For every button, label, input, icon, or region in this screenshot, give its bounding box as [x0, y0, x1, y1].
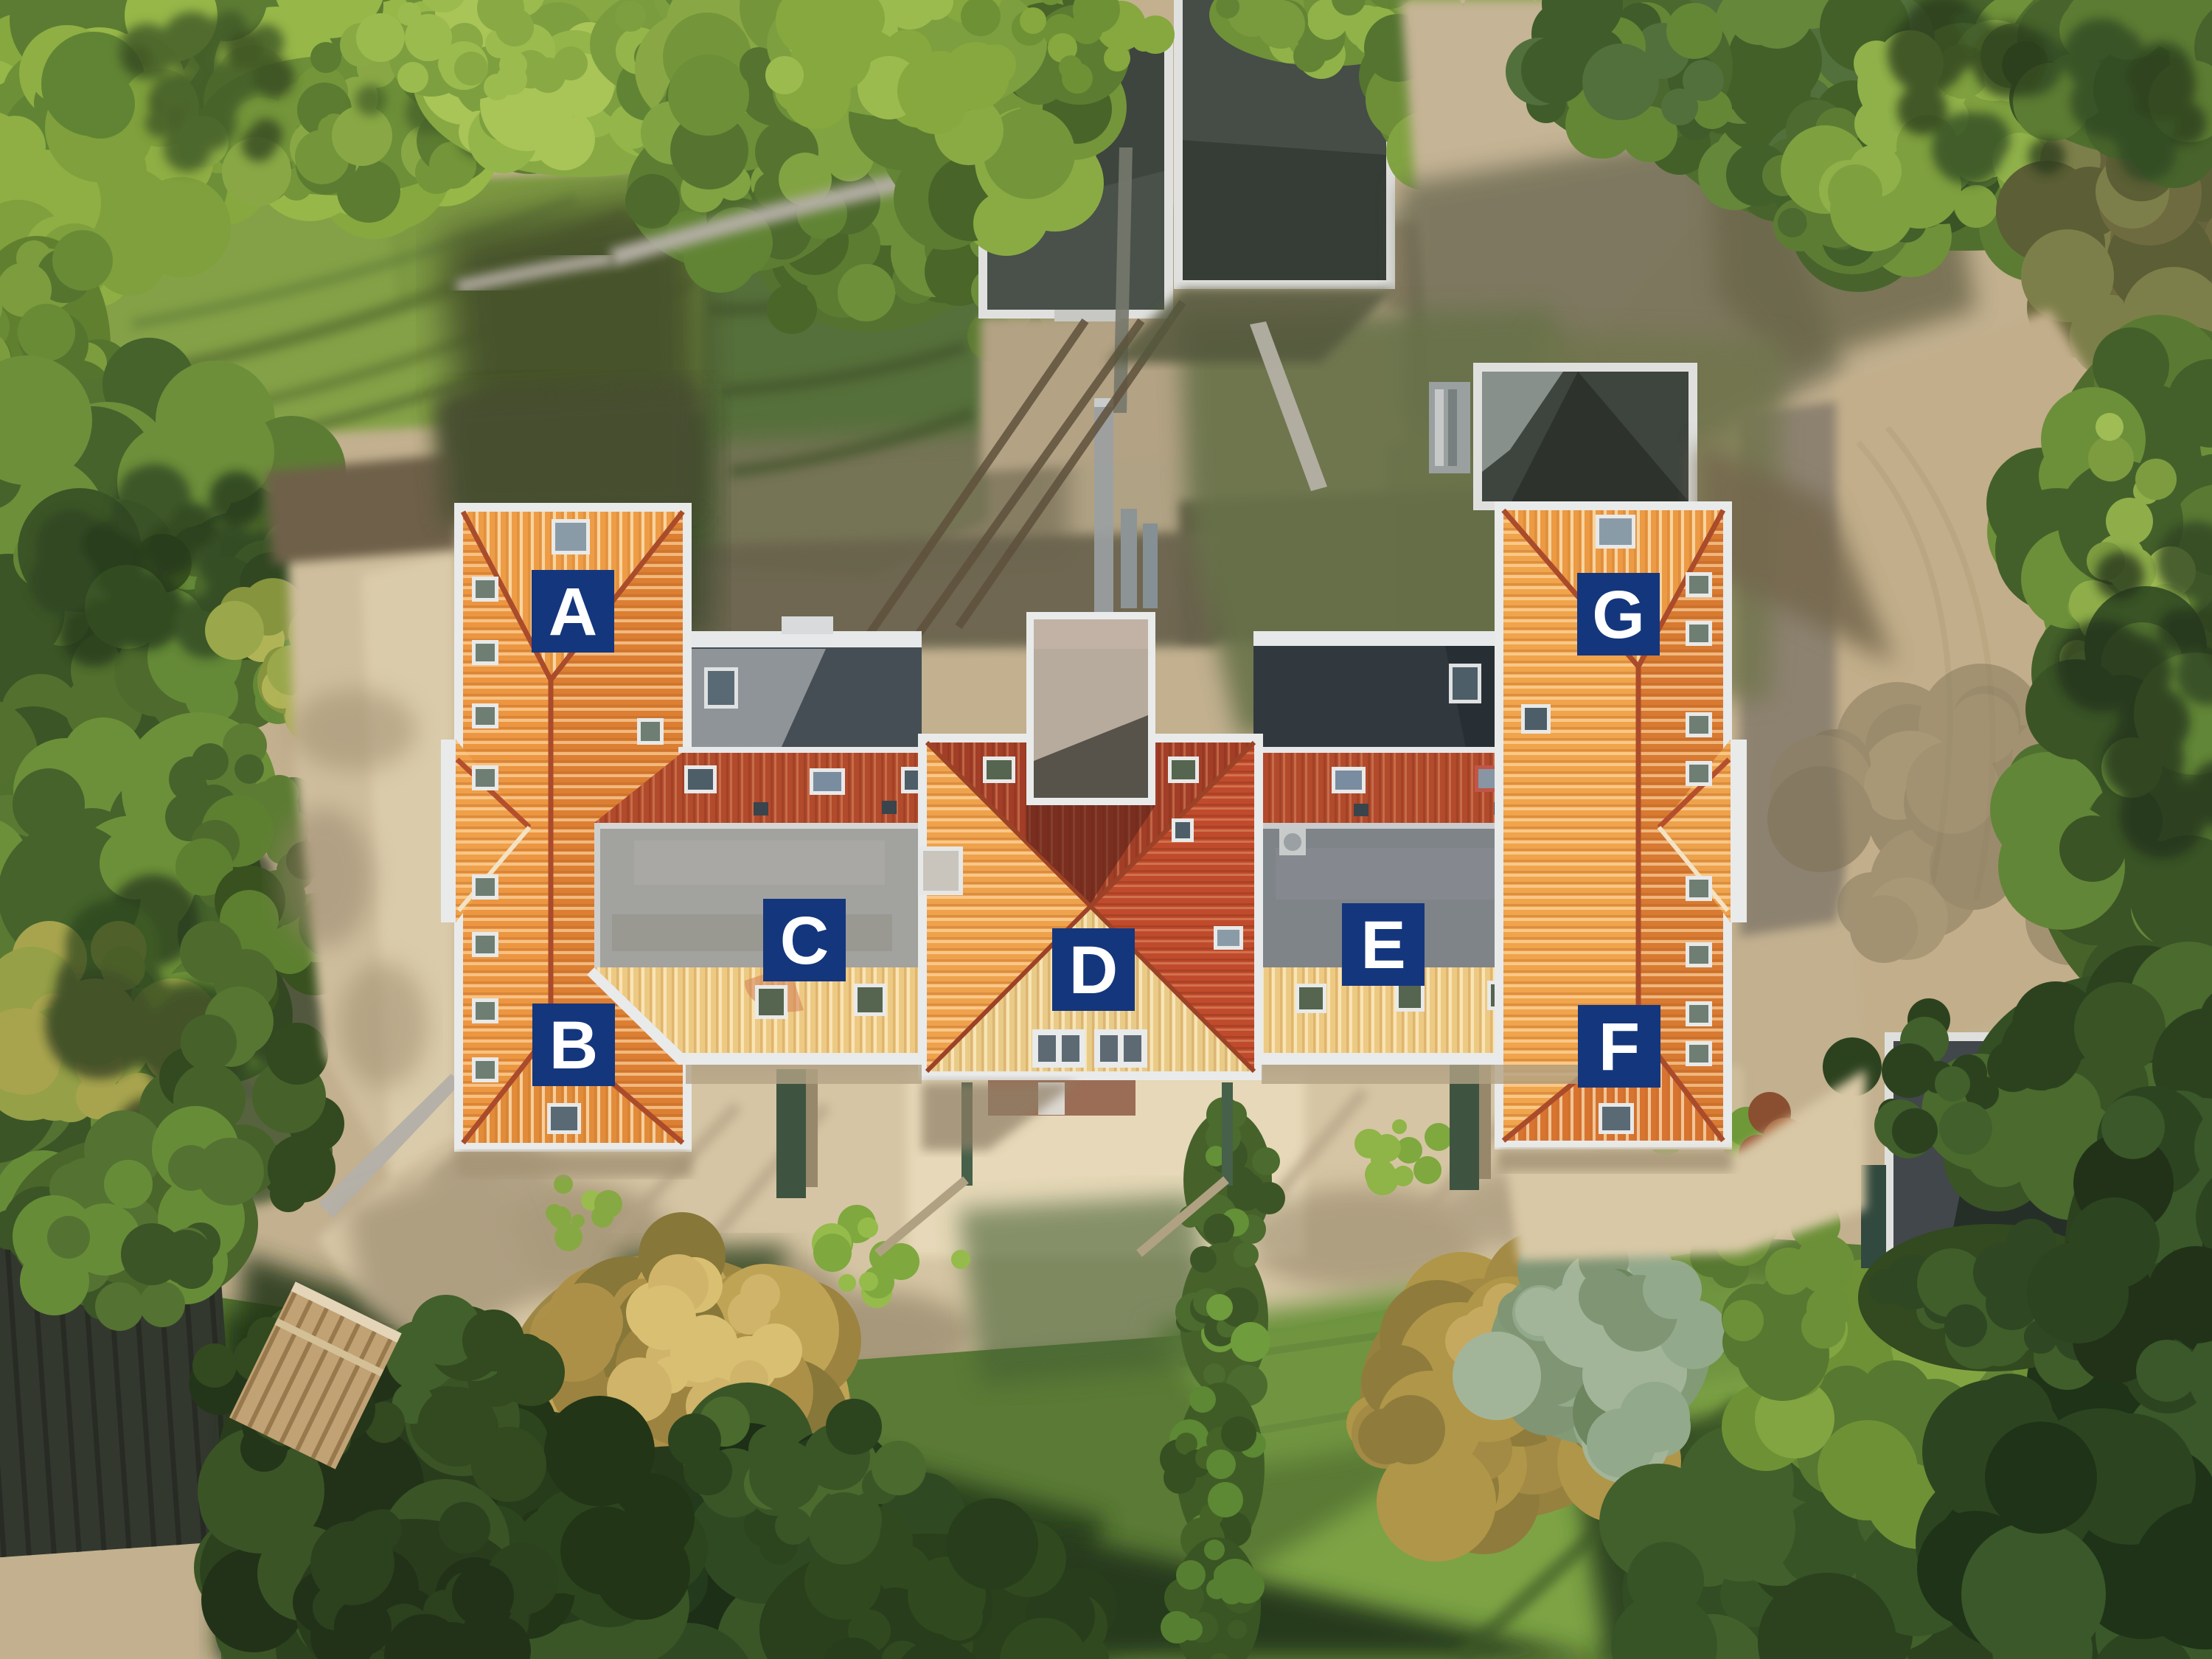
svg-text:E: E [1360, 908, 1405, 983]
svg-text:C: C [780, 903, 829, 978]
svg-text:G: G [1592, 577, 1645, 653]
svg-text:D: D [1069, 933, 1118, 1008]
svg-text:A: A [549, 574, 597, 650]
svg-text:B: B [549, 1008, 598, 1083]
svg-text:F: F [1599, 1009, 1640, 1085]
